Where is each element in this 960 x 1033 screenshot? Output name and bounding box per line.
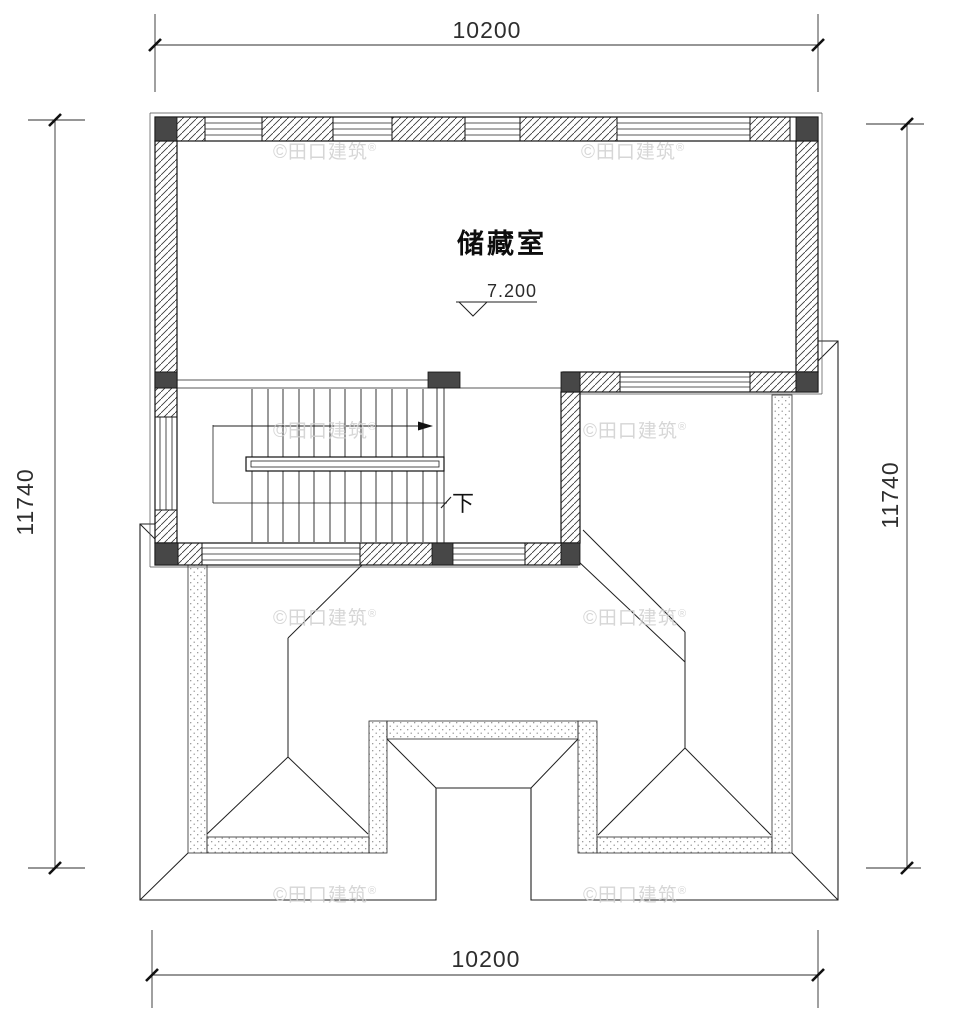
pier xyxy=(520,117,617,141)
pier xyxy=(262,117,333,141)
floorplan-canvas: 下 储藏室 7.200 10200 10200 11740 11740 ©田口建… xyxy=(0,0,960,1028)
roof-notch-slope-right xyxy=(531,739,578,788)
dimension-right: 11740 xyxy=(866,118,924,874)
column-stair-bottom xyxy=(432,543,453,565)
gutter-band-notch-top xyxy=(387,721,578,739)
pier-left-upper xyxy=(155,141,177,372)
roof-hip-left-b xyxy=(288,757,368,834)
dimension-left: 11740 xyxy=(12,114,85,874)
roof-outline xyxy=(140,341,838,900)
stair-treads-lower-flight xyxy=(252,470,423,542)
roof-notch-slope-left xyxy=(387,739,436,788)
pier xyxy=(580,372,620,392)
room-annotations: 储藏室 7.200 xyxy=(456,228,547,316)
pier-right-wall xyxy=(796,141,818,372)
dimension-bottom-value: 10200 xyxy=(452,946,521,972)
column-interior-bottom xyxy=(561,543,580,565)
column-left-mid xyxy=(155,372,177,388)
watermark: ©田口建筑® xyxy=(273,141,377,163)
pier xyxy=(155,510,177,543)
elevation-marker-triangle xyxy=(459,302,487,316)
dimension-bottom: 10200 xyxy=(146,930,824,1008)
building-walls xyxy=(150,113,822,567)
pier xyxy=(155,388,177,417)
room-name-label: 储藏室 xyxy=(457,228,547,259)
column-top-left xyxy=(155,117,177,141)
pier xyxy=(178,543,202,565)
dimension-left-value: 11740 xyxy=(12,468,38,535)
column-right-mid xyxy=(796,372,818,392)
roof-hip-bottom-left xyxy=(140,853,188,900)
roof-hip-bottom-right xyxy=(792,853,838,900)
pier xyxy=(525,543,563,565)
watermark: ©田口建筑® xyxy=(273,607,377,629)
gutter-band-right xyxy=(772,395,792,853)
dimension-top-value: 10200 xyxy=(453,17,522,43)
pier xyxy=(750,117,790,141)
watermark: ©田口建筑® xyxy=(273,420,377,442)
floorplan-sheet: 下 储藏室 7.200 10200 10200 11740 11740 ©田口建… xyxy=(0,0,960,1028)
roof-hip-right-b xyxy=(685,748,771,835)
column-stair-top xyxy=(428,372,460,388)
roof-hip-right-a xyxy=(598,748,685,835)
gutter-band-notch-right xyxy=(578,721,597,853)
gutter-band-bottom-right xyxy=(597,837,772,853)
roof-plan xyxy=(140,341,838,900)
gutter-band-notch-left xyxy=(369,721,387,853)
pier xyxy=(175,117,205,141)
dimension-top: 10200 xyxy=(149,14,824,92)
stair-direction-arrowhead xyxy=(418,422,433,431)
gutter-band-left xyxy=(188,562,207,853)
column-interior-top xyxy=(561,372,580,392)
stair-handrail xyxy=(246,457,444,471)
pier xyxy=(360,543,435,565)
column-top-right xyxy=(796,117,818,141)
roof-hip-left-a xyxy=(207,757,288,834)
staircase: 下 xyxy=(213,388,474,543)
pier xyxy=(750,372,796,392)
pier xyxy=(392,117,465,141)
pier-interior-wall xyxy=(561,392,580,543)
column-bottom-left xyxy=(155,543,178,565)
elevation-value: 7.200 xyxy=(487,281,537,301)
watermark: ©田口建筑® xyxy=(273,884,377,906)
stair-down-leader-tick xyxy=(441,497,451,508)
watermark: ©田口建筑® xyxy=(583,607,687,629)
stair-down-label: 下 xyxy=(452,491,474,516)
dimension-right-value: 11740 xyxy=(877,461,903,528)
watermark: ©田口建筑® xyxy=(583,884,687,906)
watermark: ©田口建筑® xyxy=(583,420,687,442)
watermark: ©田口建筑® xyxy=(581,141,685,163)
gutter-band-bottom-left xyxy=(207,837,369,853)
